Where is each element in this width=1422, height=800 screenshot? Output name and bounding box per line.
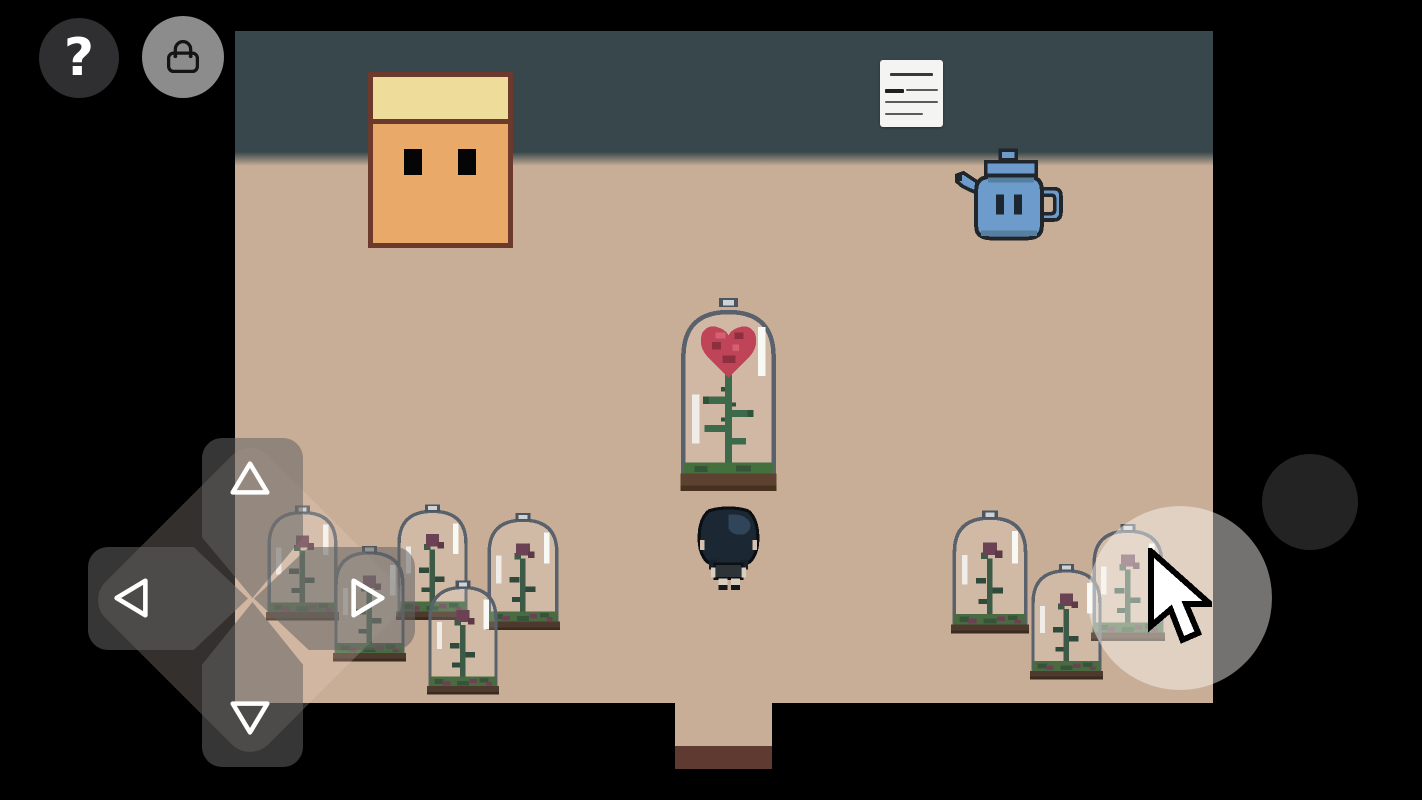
note-title-line	[890, 73, 933, 76]
doorway[interactable]	[675, 703, 772, 746]
doorway-threshold	[675, 746, 772, 769]
wall-note[interactable]	[880, 60, 943, 127]
wilted-rose-dome[interactable]	[423, 580, 503, 697]
game-screen: ?	[0, 0, 1422, 800]
wilted-rose-dome[interactable]	[948, 508, 1032, 638]
action-button-circle[interactable]	[1262, 454, 1358, 550]
note-text-line	[906, 89, 938, 91]
question-mark-icon: ?	[64, 32, 94, 84]
note-text-line	[885, 101, 938, 103]
face-painting[interactable]	[368, 72, 513, 248]
enchanted-rose-dome[interactable]	[672, 297, 785, 500]
painting-eye	[404, 149, 422, 175]
game-viewport	[235, 31, 1213, 769]
painting-eye	[458, 149, 476, 175]
arrow-cursor-icon	[1148, 548, 1212, 652]
painting-hair-panel	[373, 77, 508, 124]
note-text-line	[885, 113, 923, 115]
teapot-sprite[interactable]	[953, 148, 1065, 248]
inventory-button[interactable]	[142, 16, 224, 98]
note-text-line	[885, 89, 904, 93]
player-character	[697, 503, 760, 591]
help-button[interactable]: ?	[39, 18, 119, 98]
handbag-icon	[160, 34, 206, 80]
